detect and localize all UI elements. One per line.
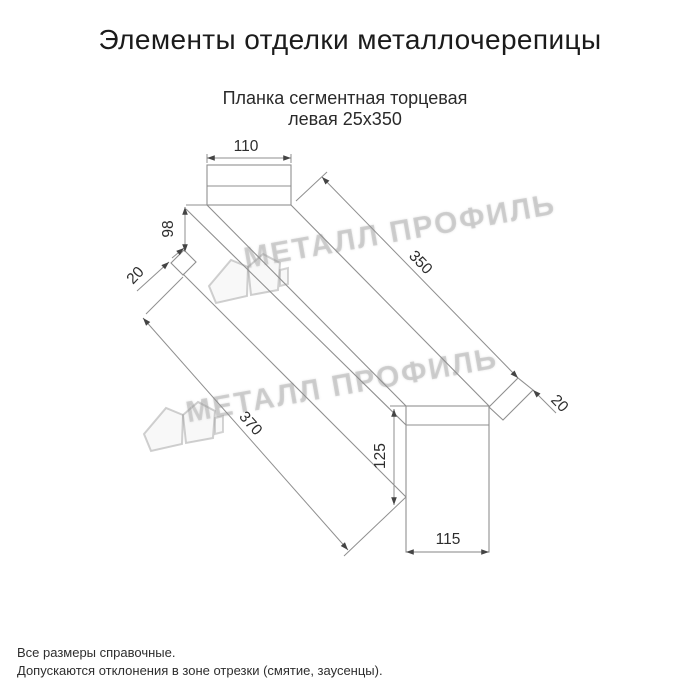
left-hem-flap [171,250,196,275]
part-outline [171,165,533,552]
watermark-logo [144,402,223,451]
right-hem-flap [489,378,533,420]
dim-label-right-height: 125 [372,443,390,469]
dimension-lines [137,154,556,556]
dim-label-bottom-width: 115 [436,531,461,549]
strip-edge-back-top [291,205,489,406]
strip-fold-edge [186,209,406,425]
dim-label-left-height: 98 [160,220,178,237]
strip-edge-front-top [207,205,406,406]
footer-notes: Все размеры справочные. Допускаются откл… [17,644,383,680]
dim-line-350 [322,177,518,378]
technical-drawing: МЕТАЛЛ ПРОФИЛЬ МЕТАЛЛ ПРОФИЛЬ [0,0,700,700]
dim-label-top-width: 110 [234,138,259,156]
footer-note-line1: Все размеры справочные. [17,644,383,662]
left-end-face [207,165,291,205]
drawing-svg [0,0,700,700]
watermark-logo [209,254,288,303]
footer-note-line2: Допускаются отклонения в зоне отрезки (с… [17,662,383,680]
page: Элементы отделки металлочерепицы Планка … [0,0,700,700]
